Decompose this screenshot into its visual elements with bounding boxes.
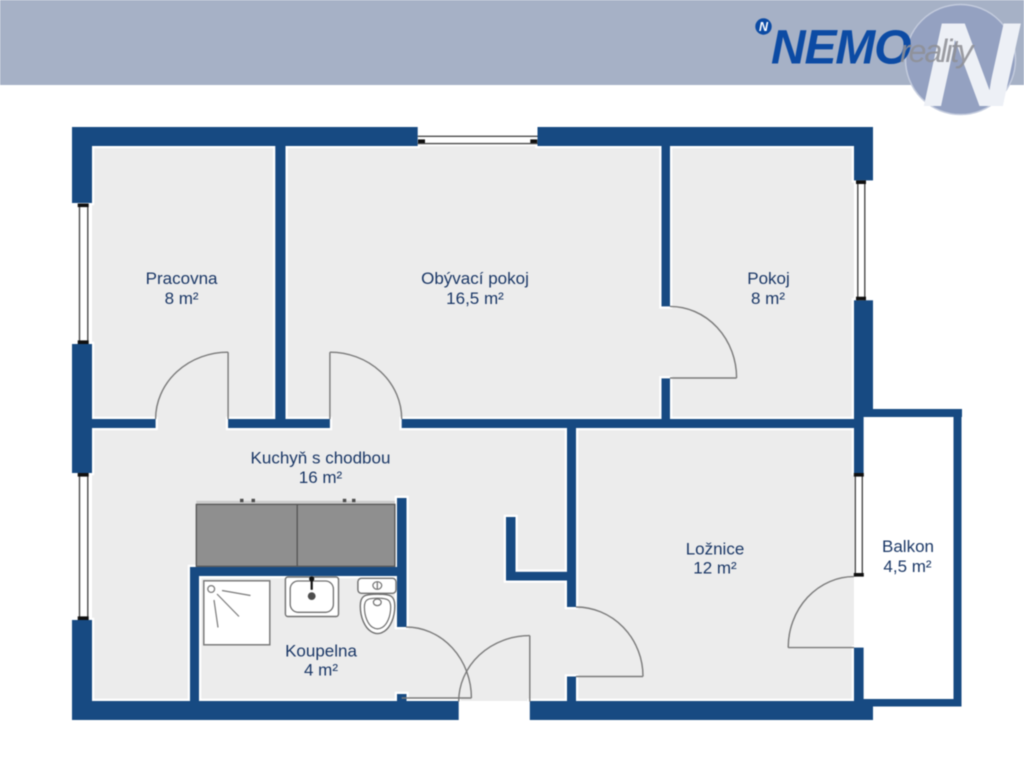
svg-text:NEMO: NEMO (771, 22, 911, 75)
svg-text:4 m²: 4 m² (304, 661, 338, 680)
svg-text:4,5 m²: 4,5 m² (883, 557, 932, 576)
svg-text:16,5 m²: 16,5 m² (446, 289, 504, 308)
svg-text:Kuchyň s chodbou: Kuchyň s chodbou (251, 449, 391, 468)
svg-text:N: N (759, 20, 769, 34)
svg-text:8 m²: 8 m² (751, 289, 785, 308)
svg-text:Pokoj: Pokoj (747, 269, 790, 288)
svg-text:Koupelna: Koupelna (285, 642, 357, 661)
svg-text:reality: reality (900, 33, 975, 69)
svg-text:16 m²: 16 m² (299, 468, 343, 487)
svg-text:Pracovna: Pracovna (146, 269, 218, 288)
svg-text:Obývací pokoj: Obývací pokoj (421, 269, 529, 288)
svg-text:Ložnice: Ložnice (686, 540, 745, 559)
svg-text:8 m²: 8 m² (165, 289, 199, 308)
svg-text:12 m²: 12 m² (693, 559, 737, 578)
svg-text:Balkon: Balkon (882, 537, 934, 556)
